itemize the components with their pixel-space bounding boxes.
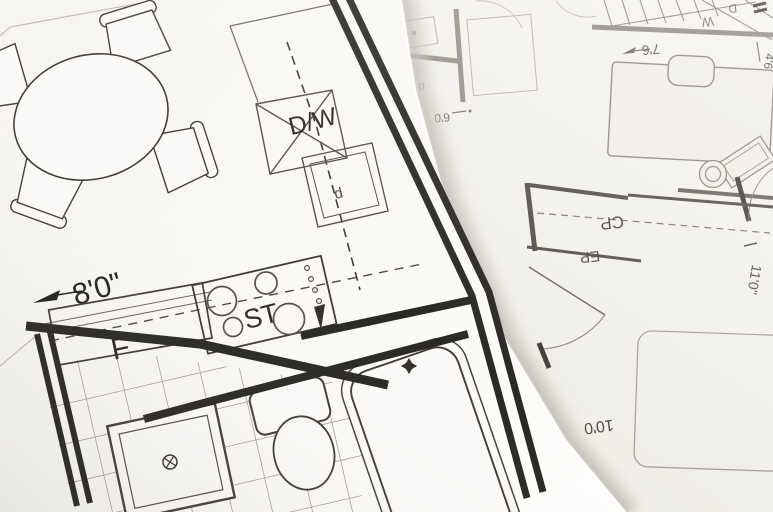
floorplan-photo-svg: W D 7'6 4'6	[0, 0, 773, 512]
dryer-label: D	[727, 1, 737, 16]
panel-label: EP	[579, 247, 601, 266]
stool	[700, 161, 727, 188]
pillow	[667, 55, 715, 87]
washer-label: W	[700, 14, 714, 30]
floorplan-photo: W D 7'6 4'6	[0, 0, 773, 512]
svg-text:7'6: 7'6	[641, 41, 661, 59]
svg-text:CP: CP	[599, 212, 624, 233]
